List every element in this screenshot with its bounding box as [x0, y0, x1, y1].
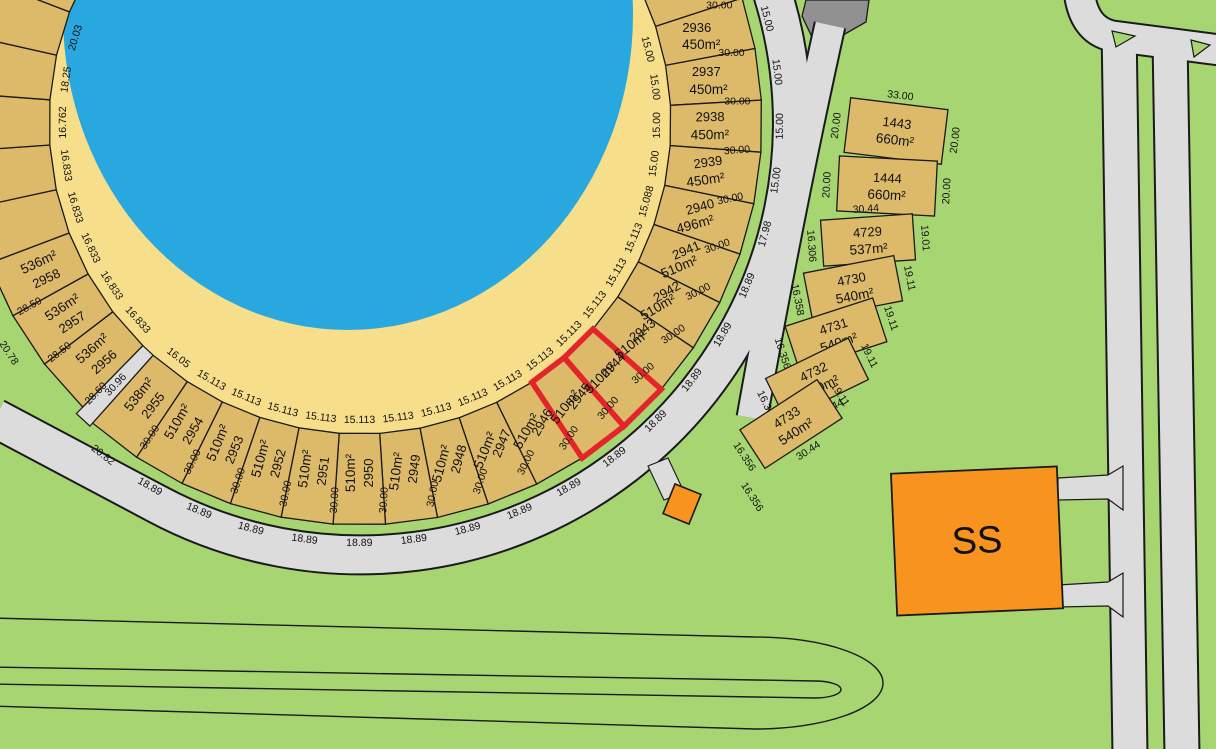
- substation-label: SS: [951, 519, 1003, 563]
- plot-number-2937: 2937: [692, 64, 721, 79]
- divided-road-right-lane[interactable]: [1170, 40, 1182, 749]
- plot-shape[interactable]: [844, 98, 948, 165]
- frontage-dim: 15.113: [344, 414, 376, 426]
- plot-dim: 20.00: [820, 171, 833, 198]
- plot-dim: 16.306: [804, 230, 818, 263]
- plot-number-1444: 1444: [873, 170, 903, 186]
- depth-dim: 30.00: [723, 143, 750, 157]
- frontage-dim: 15.00: [774, 113, 786, 140]
- plot-number-2936: 2936: [682, 20, 711, 35]
- plot-area-4729: 537m²: [849, 240, 889, 258]
- depth-dim: 30.00: [377, 487, 391, 514]
- plot-number-2950: 2950: [361, 459, 376, 488]
- plot-number-2938: 2938: [696, 109, 725, 124]
- depth-dim: 30.00: [328, 487, 342, 514]
- plot-dim: 20.00: [940, 178, 953, 205]
- depth-dim: 30.00: [724, 96, 750, 108]
- beach-edge-dim: 16.762: [57, 106, 69, 138]
- plot-shape[interactable]: [821, 214, 916, 266]
- plot-area-2937: 450m²: [689, 82, 728, 97]
- plot-number-4729: 4729: [852, 224, 882, 241]
- depth-dim: 30.00: [718, 47, 744, 59]
- plot-area-2950: 510m²: [343, 453, 358, 492]
- frontage-dim: 18.89: [346, 537, 372, 549]
- frontage-dim: 15.00: [651, 112, 663, 139]
- cadastral-map: 1443660m²33.0033.0020.0020.001444660m²33…: [0, 0, 1216, 749]
- plot-sliver: [0, 93, 50, 151]
- map-canvas: 1443660m²33.0033.0020.0020.001444660m²33…: [0, 0, 1216, 749]
- substation-block[interactable]: SS: [891, 466, 1063, 615]
- divided-road-left-lane[interactable]: [1119, 26, 1130, 749]
- depth-dim: 30.00: [706, 0, 732, 12]
- plot-dim: 19.01: [918, 224, 932, 251]
- plot-area-1444: 660m²: [867, 186, 907, 203]
- plot-area-2936: 450m²: [682, 37, 721, 52]
- plot-area-2938: 450m²: [691, 127, 730, 142]
- plot-dim: 30.44: [852, 202, 879, 216]
